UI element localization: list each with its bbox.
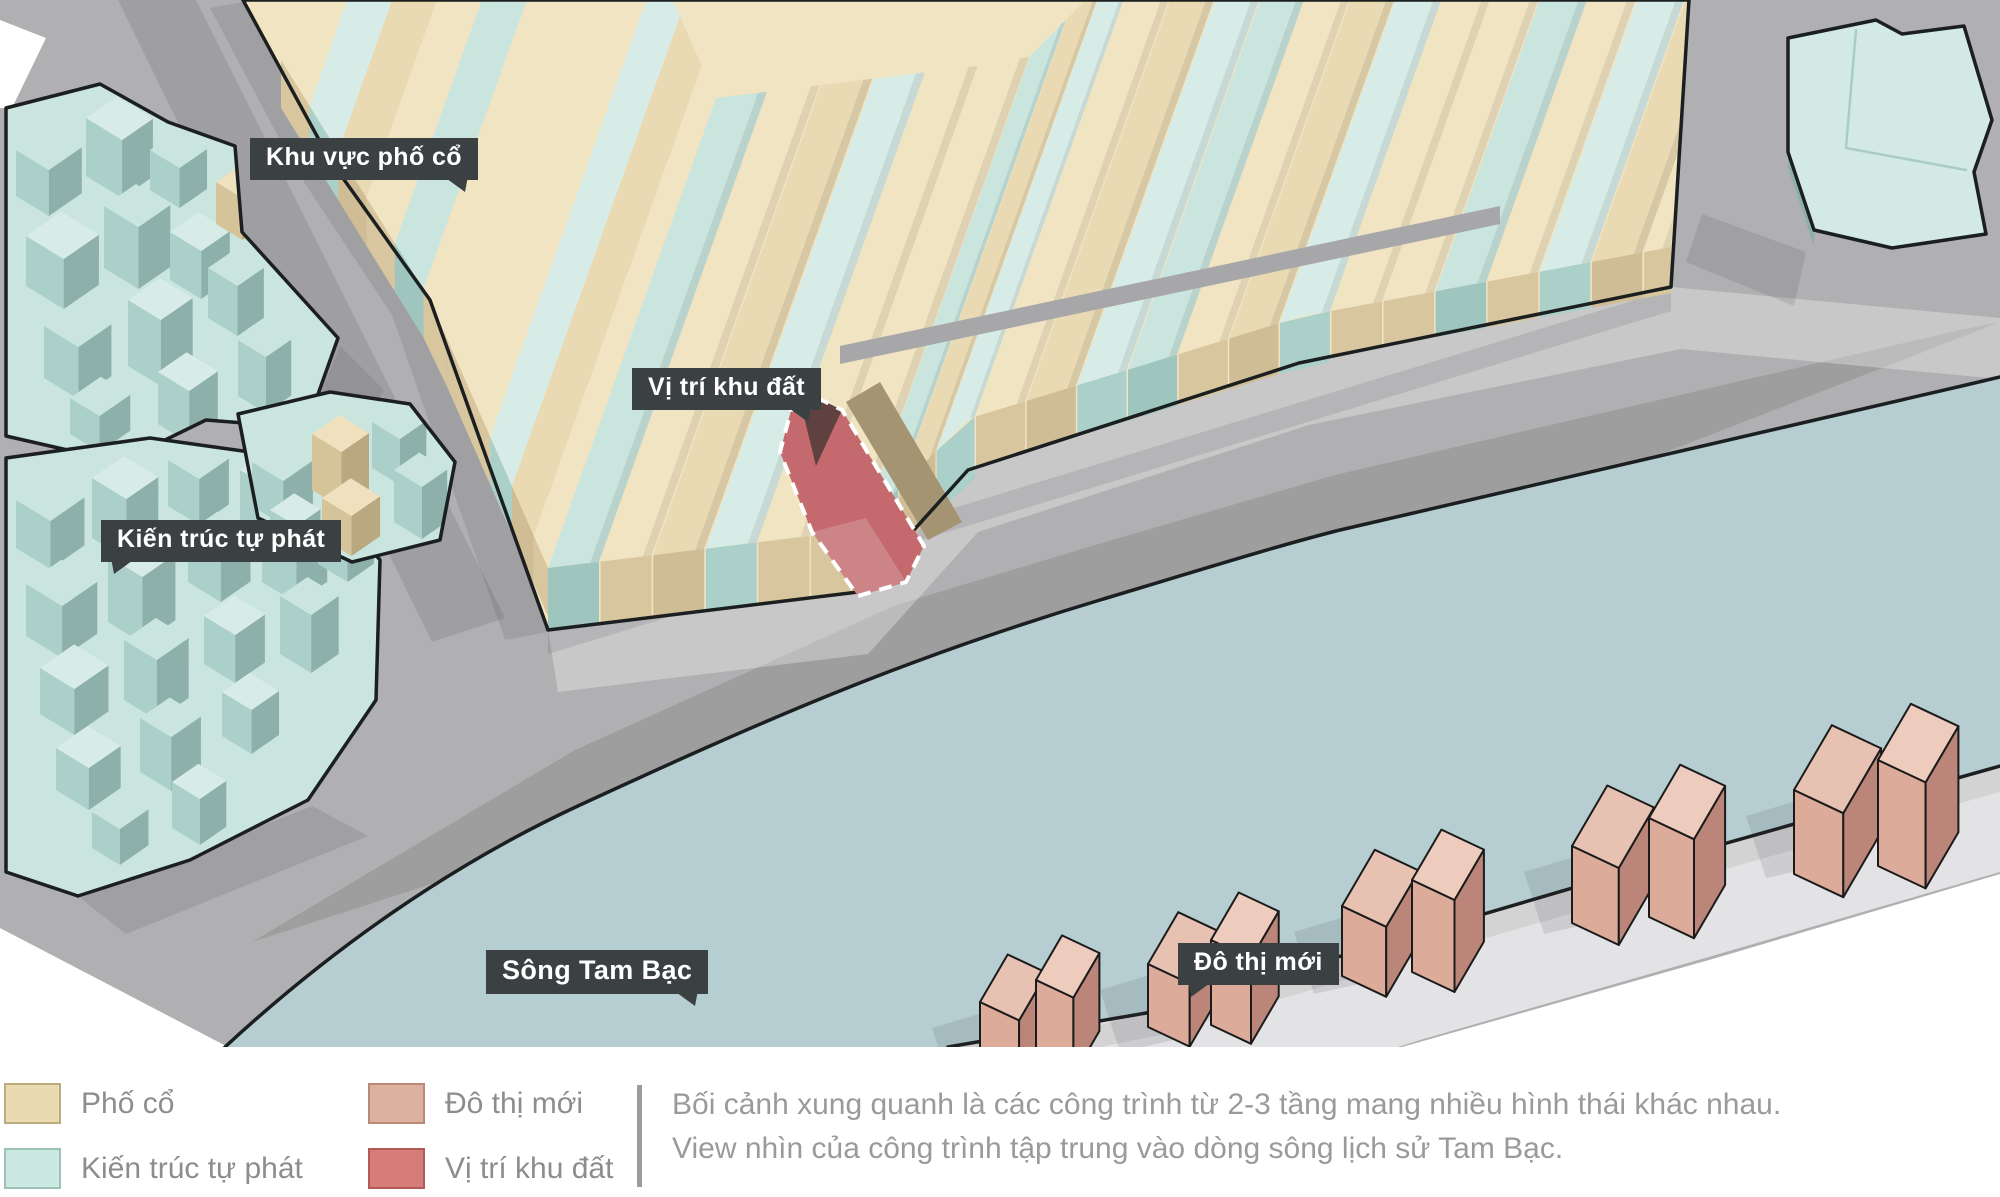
map-tag-river: Sông Tam Bạc [486,950,708,994]
legend-item-do-thi-moi: Đô thị mới [368,1083,583,1124]
legend-item-do-thi-moi-swatch [368,1083,425,1124]
site-analysis-diagram: Khu vực phố cổ Vị trí khu đất Kiến trúc … [0,0,2000,1197]
map-tag-old-quarter-area-text: Khu vực phố cổ [266,143,462,171]
legend-item-pho-co: Phố cổ [4,1083,174,1124]
legend-item-kien-truc-tu-phat-swatch [4,1148,61,1189]
description-line-1: Bối cảnh xung quanh là các công trình từ… [672,1083,1781,1127]
legend-item-kien-truc-tu-phat: Kiến trúc tự phát [4,1148,303,1189]
map-tag-site-location: Vị trí khu đất [632,368,821,410]
map-tag-informal-architecture-text: Kiến trúc tự phát [117,525,325,553]
legend: Phố cổKiến trúc tự phátĐô thị mớiVị trí … [0,1047,2000,1197]
legend-item-do-thi-moi-label: Đô thị mới [445,1087,583,1121]
riverside-building-east [1788,20,1992,248]
map-tag-new-urban: Đô thị mới [1178,943,1339,985]
legend-item-pho-co-label: Phố cổ [81,1087,174,1121]
legend-item-vi-tri-khu-dat-label: Vị trí khu đất [445,1152,613,1186]
legend-item-pho-co-swatch [4,1083,61,1124]
map-tag-old-quarter-area: Khu vực phố cổ [250,138,478,180]
legend-item-kien-truc-tu-phat-label: Kiến trúc tự phát [81,1152,303,1186]
map-tag-river-text: Sông Tam Bạc [502,955,692,985]
legend-item-vi-tri-khu-dat: Vị trí khu đất [368,1148,613,1189]
map-tag-informal-architecture: Kiến trúc tự phát [101,520,341,562]
legend-item-vi-tri-khu-dat-swatch [368,1148,425,1189]
description-line-2: View nhìn của công trình tập trung vào d… [672,1127,1781,1171]
legend-divider [637,1085,642,1187]
map-tag-new-urban-text: Đô thị mới [1194,948,1323,976]
description-text: Bối cảnh xung quanh là các công trình từ… [672,1083,1781,1171]
map-tag-site-location-text: Vị trí khu đất [648,373,805,401]
